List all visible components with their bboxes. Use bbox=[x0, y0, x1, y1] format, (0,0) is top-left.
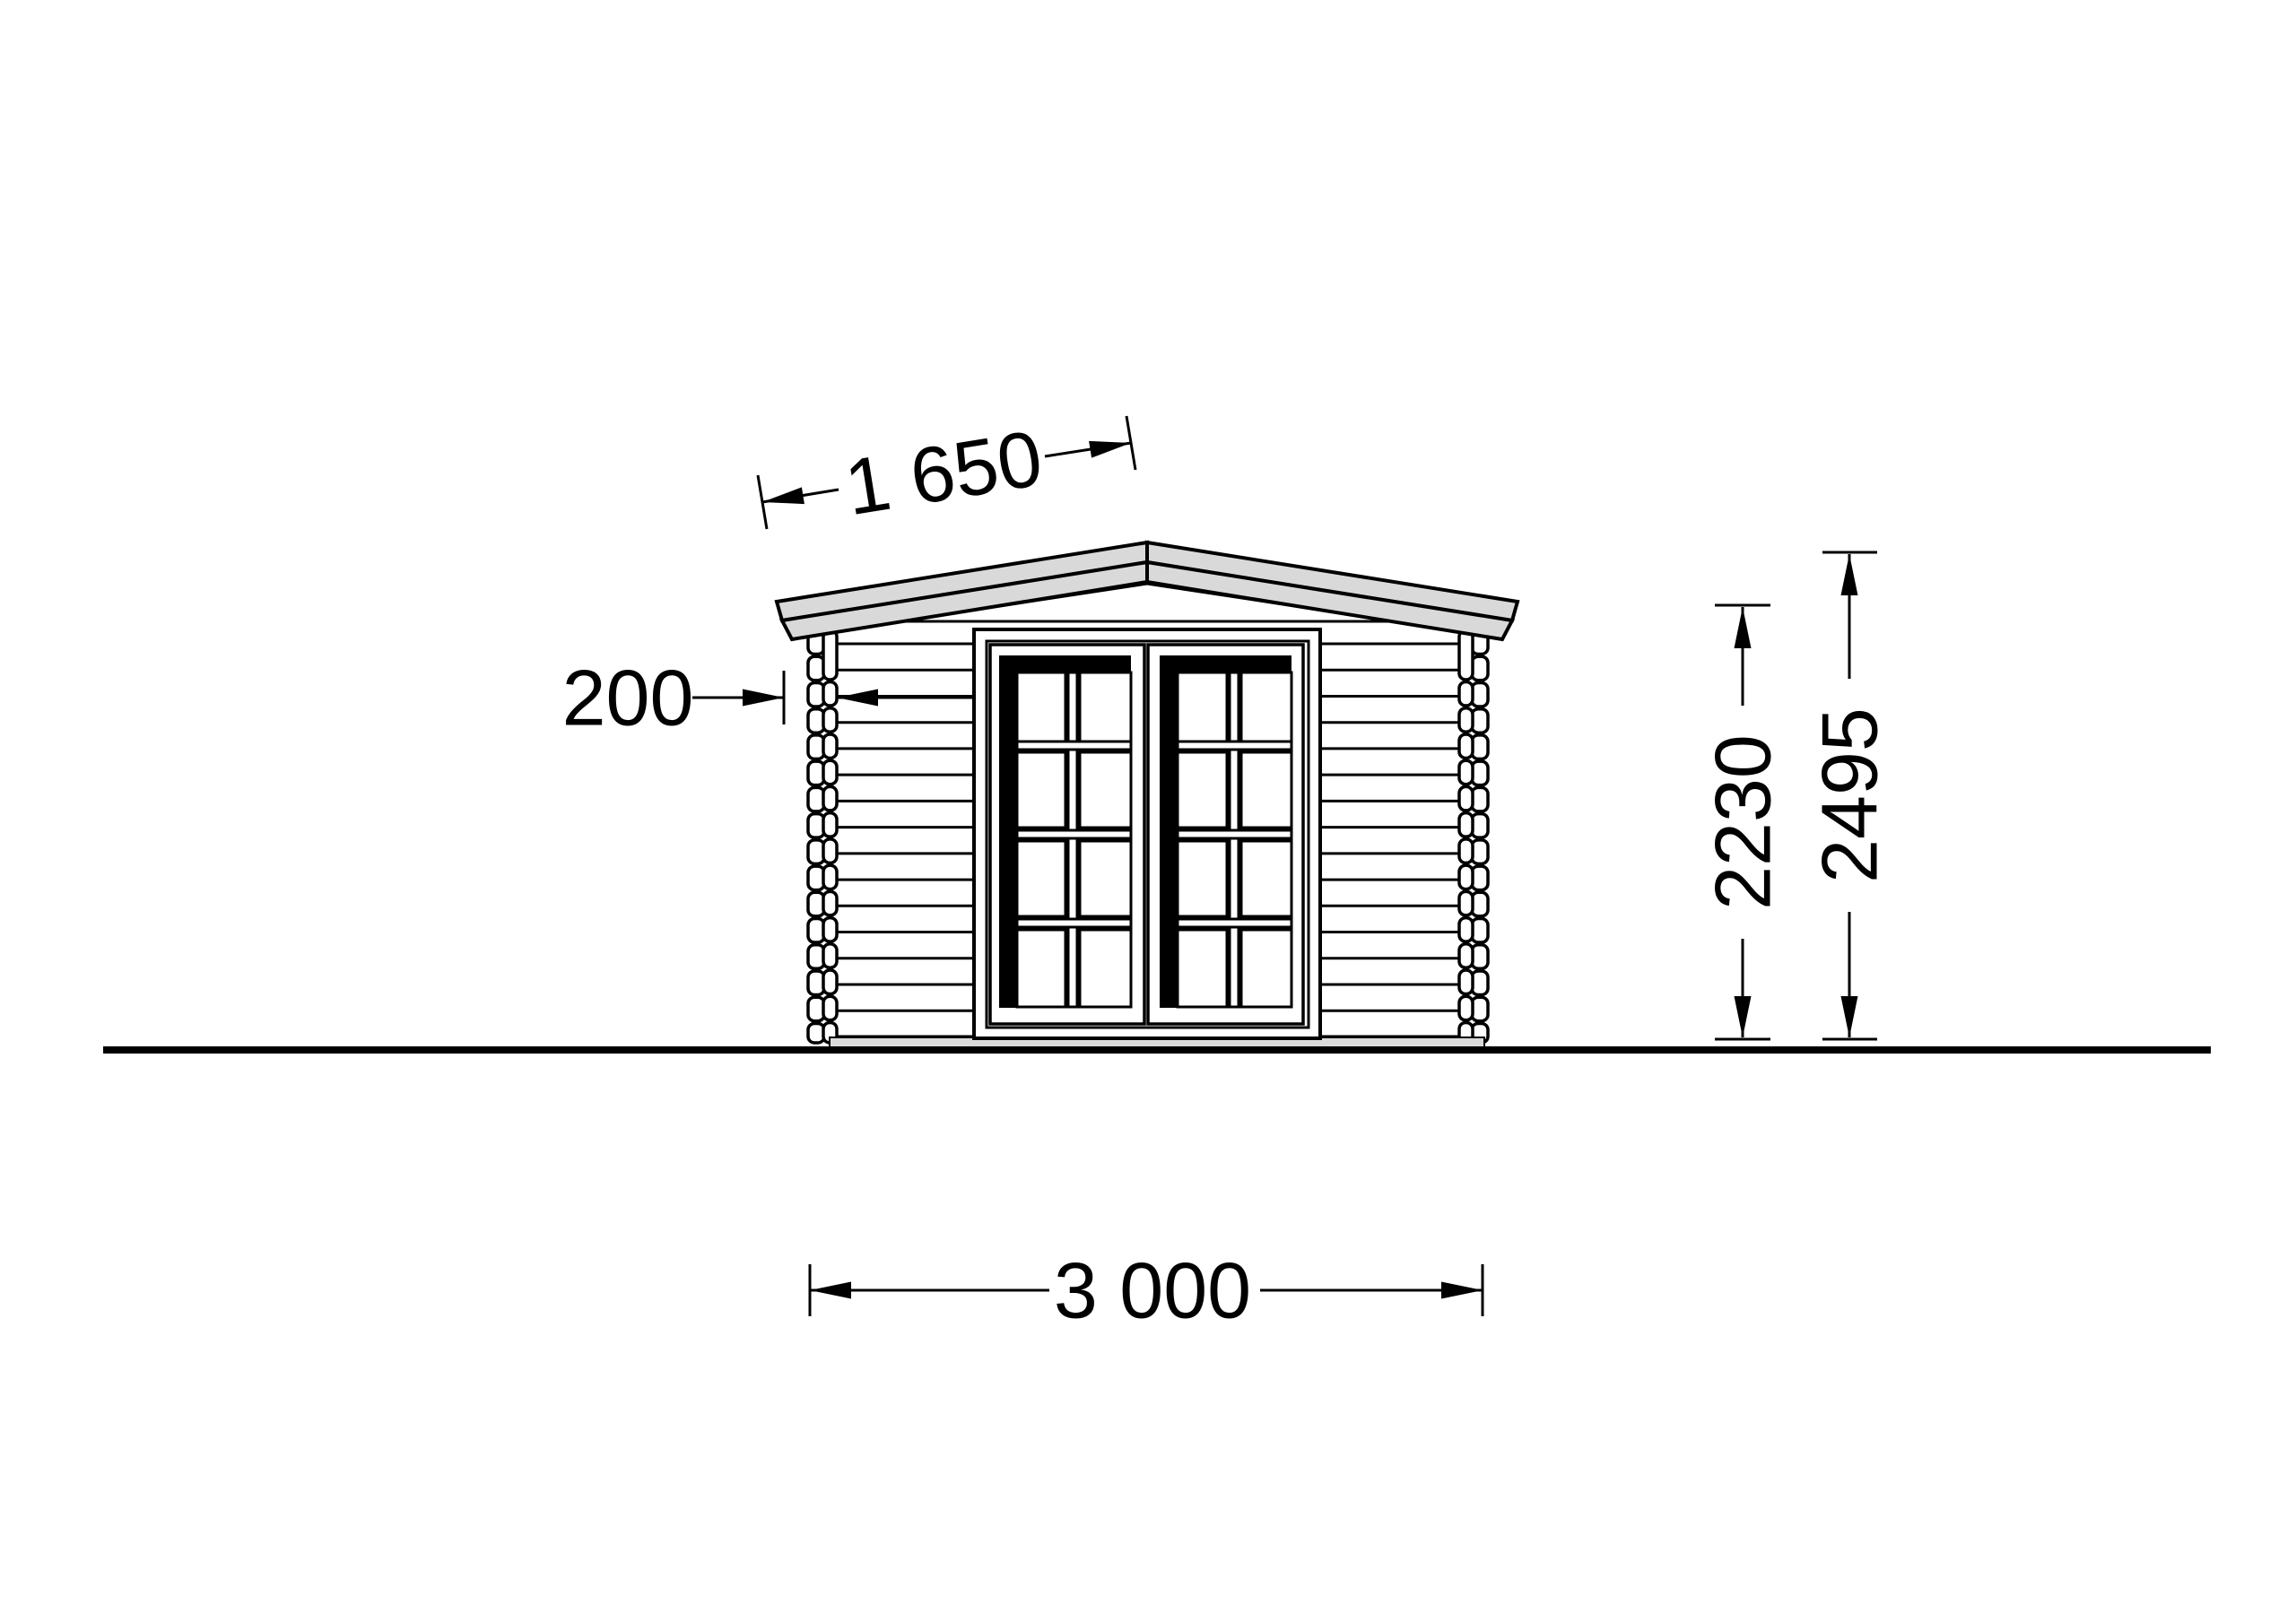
dimension-roof-overhang: 200 bbox=[562, 654, 974, 742]
dimension-total-width: 3 000 bbox=[810, 1246, 1483, 1335]
dim-arrowhead bbox=[1441, 1282, 1483, 1299]
log-end bbox=[1459, 734, 1473, 759]
glass-pane bbox=[1080, 930, 1131, 1007]
log-end bbox=[1459, 786, 1473, 811]
log-end bbox=[823, 813, 837, 837]
glass-pane bbox=[1080, 841, 1131, 916]
dim-arrowhead bbox=[1735, 607, 1752, 648]
log-end bbox=[823, 970, 837, 994]
glass-pane bbox=[1241, 841, 1291, 916]
glass-pane bbox=[1080, 672, 1131, 742]
door-panes-right bbox=[1178, 672, 1291, 1007]
log-end bbox=[1459, 682, 1473, 707]
log-end bbox=[823, 734, 837, 759]
log-end bbox=[823, 630, 837, 680]
dimension-ridge-height: 2495 bbox=[1805, 552, 1894, 1039]
glazing-bar-horizontal bbox=[1017, 919, 1131, 927]
door-panes-left bbox=[1017, 672, 1131, 1007]
log-end bbox=[823, 839, 837, 863]
glass-pane bbox=[1178, 841, 1227, 916]
log-end bbox=[823, 760, 837, 785]
glass-pane bbox=[1178, 930, 1227, 1007]
log-end bbox=[823, 708, 837, 733]
dim-arrowhead bbox=[1841, 996, 1858, 1037]
log-end bbox=[1459, 865, 1473, 889]
dim-arrowhead bbox=[837, 690, 878, 707]
double-door bbox=[974, 629, 1320, 1038]
glass-pane bbox=[1017, 841, 1065, 916]
cabin-elevation-drawing: 1 650 200 2230 bbox=[0, 0, 2296, 1622]
glass-pane bbox=[1178, 672, 1227, 742]
cabin bbox=[103, 542, 2211, 1050]
glass-pane bbox=[1017, 672, 1065, 742]
dim-arrowhead bbox=[810, 1282, 851, 1299]
dimension-wall-height: 2230 bbox=[1699, 605, 1787, 1039]
log-end bbox=[823, 865, 837, 889]
glazing-bar-horizontal bbox=[1178, 830, 1291, 838]
dim-label-ridge-height: 2495 bbox=[1805, 707, 1894, 883]
log-end bbox=[1459, 944, 1473, 968]
glazing-bar-horizontal bbox=[1017, 830, 1131, 838]
dim-arrowhead bbox=[743, 690, 784, 707]
log-end bbox=[823, 918, 837, 942]
log-end bbox=[1459, 708, 1473, 733]
dim-arrowhead bbox=[1841, 554, 1858, 595]
log-end bbox=[823, 996, 837, 1020]
roof bbox=[777, 542, 1518, 639]
glass-pane bbox=[1017, 930, 1065, 1007]
dim-label-total-width: 3 000 bbox=[1054, 1246, 1251, 1335]
log-end bbox=[1459, 630, 1473, 680]
log-end bbox=[1459, 970, 1473, 994]
dim-arrowhead bbox=[1735, 996, 1752, 1037]
dim-label-wall-height: 2230 bbox=[1699, 734, 1787, 910]
log-end bbox=[823, 891, 837, 915]
log-end bbox=[823, 786, 837, 811]
log-end bbox=[1459, 839, 1473, 863]
glass-pane bbox=[1241, 930, 1291, 1007]
drawing-page: 1 650 200 2230 bbox=[0, 0, 2296, 1622]
glass-pane bbox=[1241, 672, 1291, 742]
glass-pane bbox=[1017, 752, 1065, 828]
log-end bbox=[823, 944, 837, 968]
dim-label-roof-overhang: 200 bbox=[562, 654, 694, 742]
glass-pane bbox=[1241, 752, 1291, 828]
dimension-roof-slope: 1 650 bbox=[758, 413, 1135, 533]
dim-arrowhead bbox=[1089, 435, 1132, 458]
log-end bbox=[1459, 813, 1473, 837]
glass-pane bbox=[1080, 752, 1131, 828]
dim-label-roof-slope: 1 650 bbox=[839, 413, 1048, 533]
log-end bbox=[823, 682, 837, 707]
glazing-bar-horizontal bbox=[1178, 919, 1291, 927]
glass-pane bbox=[1178, 752, 1227, 828]
log-end bbox=[1459, 996, 1473, 1020]
log-end bbox=[1459, 891, 1473, 915]
log-end bbox=[1459, 760, 1473, 785]
dim-arrowhead bbox=[761, 487, 804, 510]
log-end bbox=[1459, 918, 1473, 942]
